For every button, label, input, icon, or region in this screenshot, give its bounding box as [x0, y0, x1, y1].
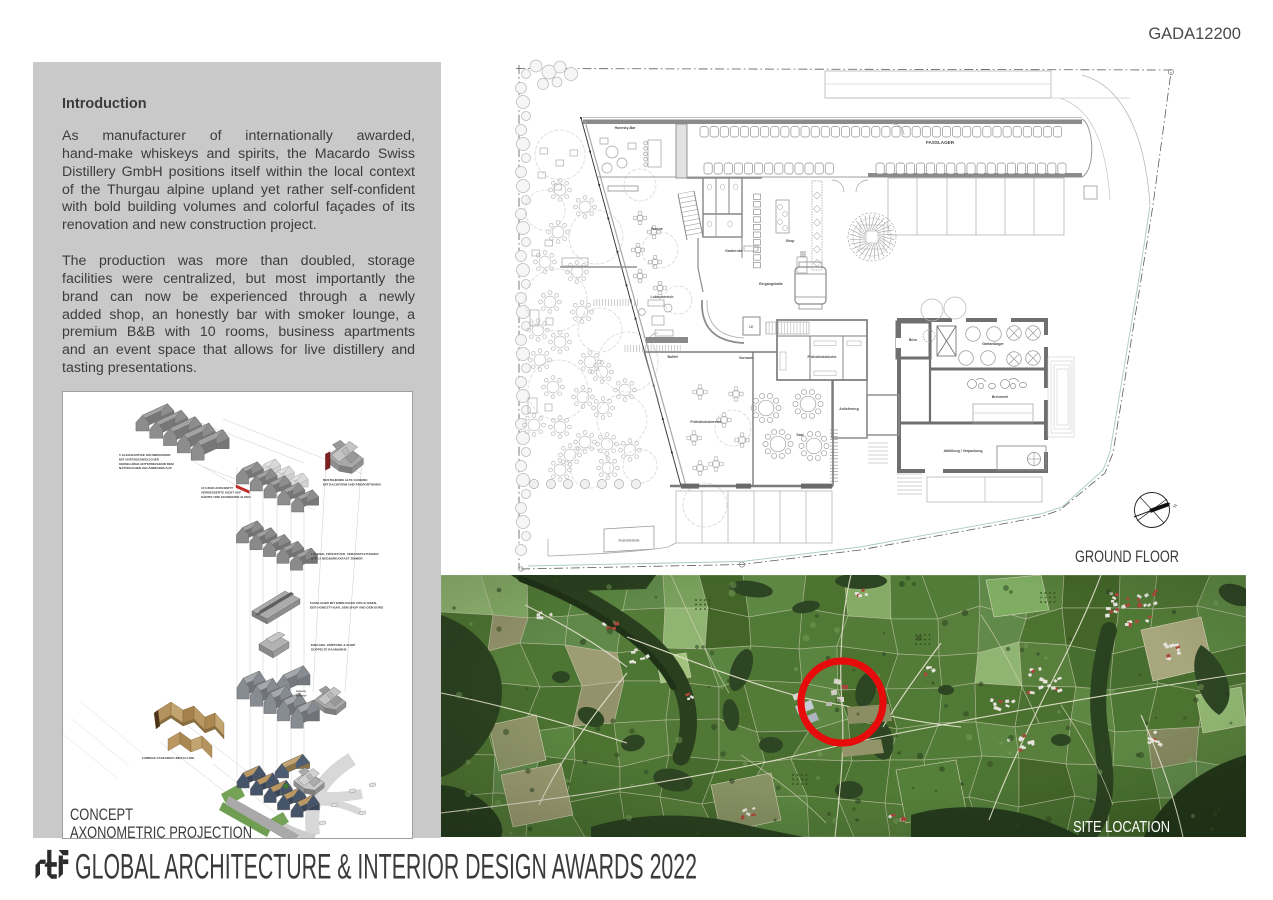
svg-text:LOUNGE, FRÜHSTÜCK, VERANSTALTU: LOUNGE, FRÜHSTÜCK, VERANSTALTUNGEN& *B+2… [311, 552, 379, 560]
svg-text:Bushaltestelle: Bushaltestelle [618, 539, 639, 543]
svg-text:Anlieferung: Anlieferung [839, 407, 858, 411]
svg-text:Lobbybereich: Lobbybereich [651, 295, 674, 299]
svg-text:Honesty-Bar: Honesty-Bar [615, 126, 636, 130]
svg-text:Abfüllung / Verpackung: Abfüllung / Verpackung [943, 449, 982, 453]
svg-text:GLOBAL ARCHITECTURE & INTERIOR: GLOBAL ARCHITECTURE & INTERIOR DESIGN AW… [75, 847, 697, 887]
svg-text:Vorraum: Vorraum [739, 356, 753, 360]
svg-text:Garderobe: Garderobe [725, 249, 743, 253]
svg-text:10 GRAD ANSCHNITTVERBESSERTE S: 10 GRAD ANSCHNITTVERBESSERTE SICHT AUFSÄ… [201, 486, 251, 499]
svg-text:Eingangshalle: Eingangshalle [759, 282, 783, 286]
svg-text:FASSLAGER: FASSLAGER [926, 140, 955, 145]
svg-text:CONCEPT: CONCEPT [70, 806, 133, 824]
svg-text:Gärtanklager: Gärtanklager [982, 342, 1004, 346]
svg-text:Lift: Lift [749, 325, 754, 329]
svg-text:Buffetʹ: Buffetʹ [668, 355, 679, 359]
svg-text:Saal: Saal [796, 433, 803, 437]
svg-text:Brennerei: Brennerei [992, 395, 1008, 399]
svg-text:Frühstücksküche: Frühstücksküche [808, 355, 837, 359]
svg-text:Büro: Büro [909, 338, 917, 342]
svg-text:GROUND FLOOR: GROUND FLOOR [1075, 548, 1179, 566]
svg-text:EINGANG, EMPFANG & SHOPDOPPELT: EINGANG, EMPFANG & SHOPDOPPELTE RAUMHÖHE [311, 643, 355, 651]
svg-text:5 GLEICHARTIGE GRUNDMASSENMIT: 5 GLEICHARTIGE GRUNDMASSENMIT UNTERSCHIE… [119, 453, 174, 470]
svg-text:Shop: Shop [786, 239, 795, 243]
svg-text:N: N [1172, 503, 1178, 508]
svg-text:Frühstücksbereich: Frühstücksbereich [690, 420, 721, 424]
svg-text:AXONOMETRIC PROJECTION: AXONOMETRIC PROJECTION [70, 824, 252, 838]
svg-text:FASSLAGER MIT EINBLICKEN VON A: FASSLAGER MIT EINBLICKEN VON AUSSEN,DER … [310, 601, 384, 609]
svg-text:SITE LOCATION: SITE LOCATION [1073, 819, 1170, 836]
svg-text:Fumoir: Fumoir [651, 227, 663, 231]
svg-text:BESTEHENDE ALTE KÄSEREIMIT DAC: BESTEHENDE ALTE KÄSEREIMIT DACHFORM UND … [323, 478, 382, 486]
svg-text:FARBIGE FASSADEN UMHÜLLUNG: FARBIGE FASSADEN UMHÜLLUNG [142, 756, 195, 760]
